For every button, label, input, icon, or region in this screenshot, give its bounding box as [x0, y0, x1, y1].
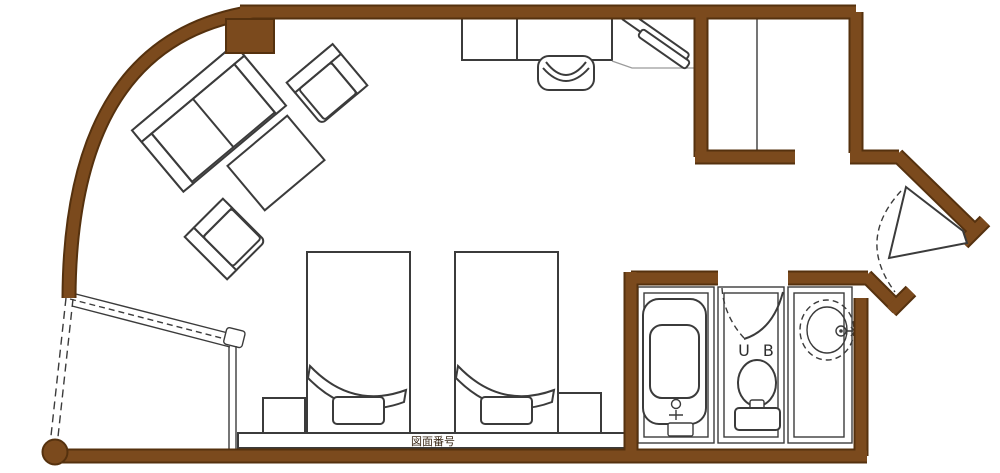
toilet-tank	[735, 408, 780, 430]
armchair-lower	[185, 199, 266, 280]
wall-pillar	[226, 19, 274, 53]
bathtub	[643, 299, 706, 436]
partition-post	[223, 327, 246, 348]
headboard-stamp-text: 図面番号	[411, 435, 455, 448]
desk-chair	[538, 56, 594, 90]
corner-column	[43, 440, 68, 465]
toilet-bowl	[738, 360, 776, 406]
nightstand-left	[263, 398, 305, 433]
nightstand-right	[558, 393, 601, 433]
pillow	[333, 397, 384, 424]
desk-right-section	[517, 16, 612, 60]
pillow	[481, 397, 532, 424]
toilet	[735, 360, 780, 430]
window-left	[50, 298, 73, 446]
bathtub-step	[668, 423, 693, 436]
unit-bath-label: U B	[738, 341, 778, 360]
washbasin	[800, 300, 859, 360]
desk-left-section	[462, 16, 517, 60]
floor-plan-page: 図面番号 U B	[0, 0, 1000, 473]
floor-plan: 図面番号 U B	[0, 0, 1000, 473]
bathroom-door	[744, 292, 783, 339]
low-partition	[68, 292, 246, 449]
armchair-upper	[287, 44, 368, 124]
entry-door	[889, 187, 967, 258]
bathroom-door-swing	[722, 288, 744, 338]
